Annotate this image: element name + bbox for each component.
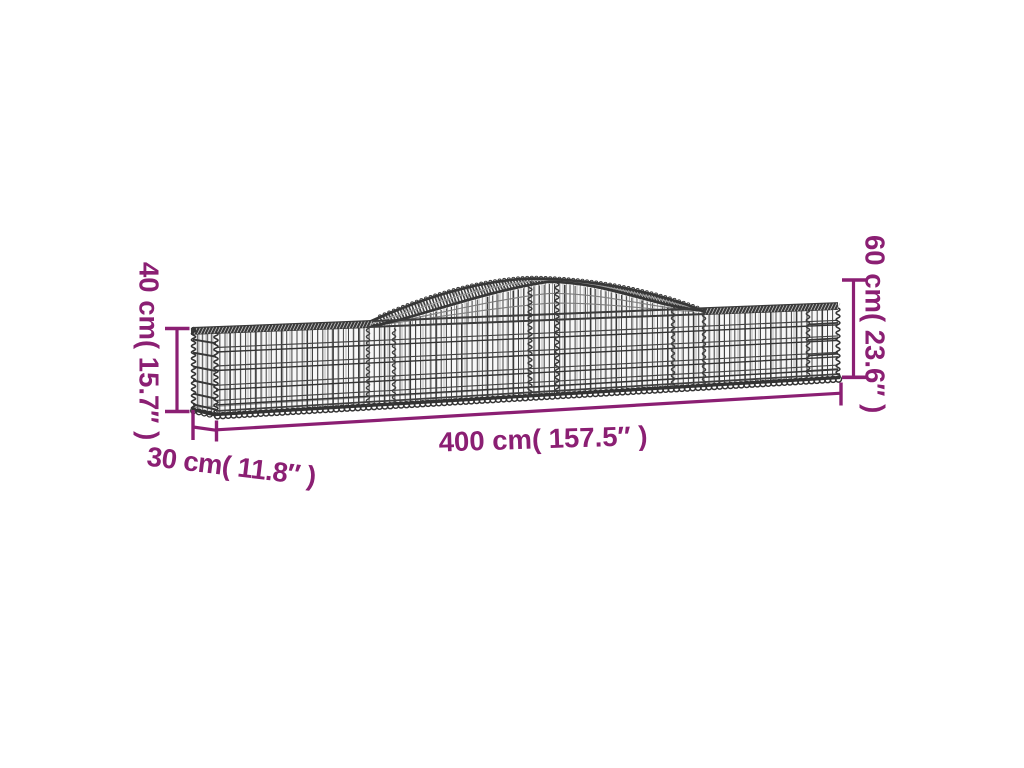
svg-text:60 cm( 23.6″ ): 60 cm( 23.6″ ) — [860, 235, 891, 413]
svg-text:400 cm( 157.5″ ): 400 cm( 157.5″ ) — [438, 420, 648, 458]
svg-text:40 cm( 15.7″ ): 40 cm( 15.7″ ) — [134, 262, 165, 440]
